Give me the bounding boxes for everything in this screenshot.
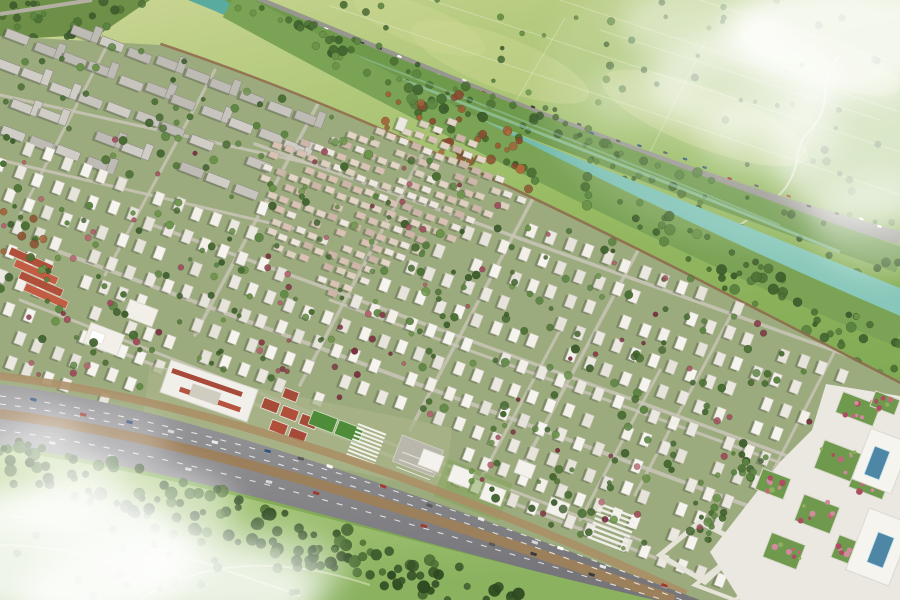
aerial-masterplan-render [0, 0, 900, 600]
masterplan-scene-canvas [0, 0, 900, 600]
